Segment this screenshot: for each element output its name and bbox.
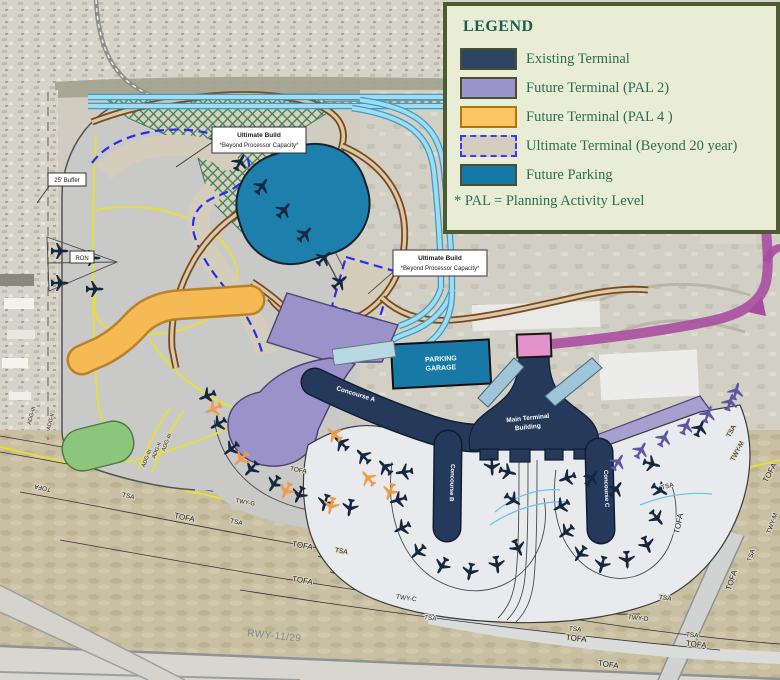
ultimate-build-callout-2-line2: *Beyond Processor Capacity* [401,266,480,272]
ultimate-build-callout-1-line2: *Beyond Processor Capacity* [220,143,299,149]
legend-item-ultimate-terminal: Ultimate Terminal (Beyond 20 year) [460,135,768,157]
legend-footnote: * PAL = Planning Activity Level [454,193,768,210]
buffer-label: 25' Buffer [54,178,79,184]
future-terminal-pal4-swatch [460,106,517,128]
legend-title: LEGEND [463,18,768,36]
airport-master-plan-page: Ultimate Build *Beyond Processor Capacit… [0,0,780,680]
legend-panel: LEGEND Existing Terminal Future Terminal… [443,2,780,234]
existing-terminal-swatch [460,48,517,70]
legend-item-label: Future Terminal (PAL 2) [526,80,669,97]
legend-item-label: Ultimate Terminal (Beyond 20 year) [526,138,737,155]
legend-item-existing-terminal: Existing Terminal [460,48,768,70]
ultimate-terminal-swatch [460,135,517,157]
legend-item-future-terminal-pal4: Future Terminal (PAL 4 ) [460,106,768,128]
ron-label: RON [75,256,88,262]
future-parking-swatch [460,164,517,186]
legend-item-label: Future Parking [526,167,613,184]
legend-item-label: Future Terminal (PAL 4 ) [526,109,673,126]
future-terminal-pal2-swatch [460,77,517,99]
legend-item-future-parking: Future Parking [460,164,768,186]
ultimate-build-callout-1-line1: Ultimate Build [237,132,281,139]
legend-item-future-terminal-pal2: Future Terminal (PAL 2) [460,77,768,99]
legend-item-label: Existing Terminal [526,51,630,68]
ultimate-build-callout-2-line1: Ultimate Build [418,255,462,262]
